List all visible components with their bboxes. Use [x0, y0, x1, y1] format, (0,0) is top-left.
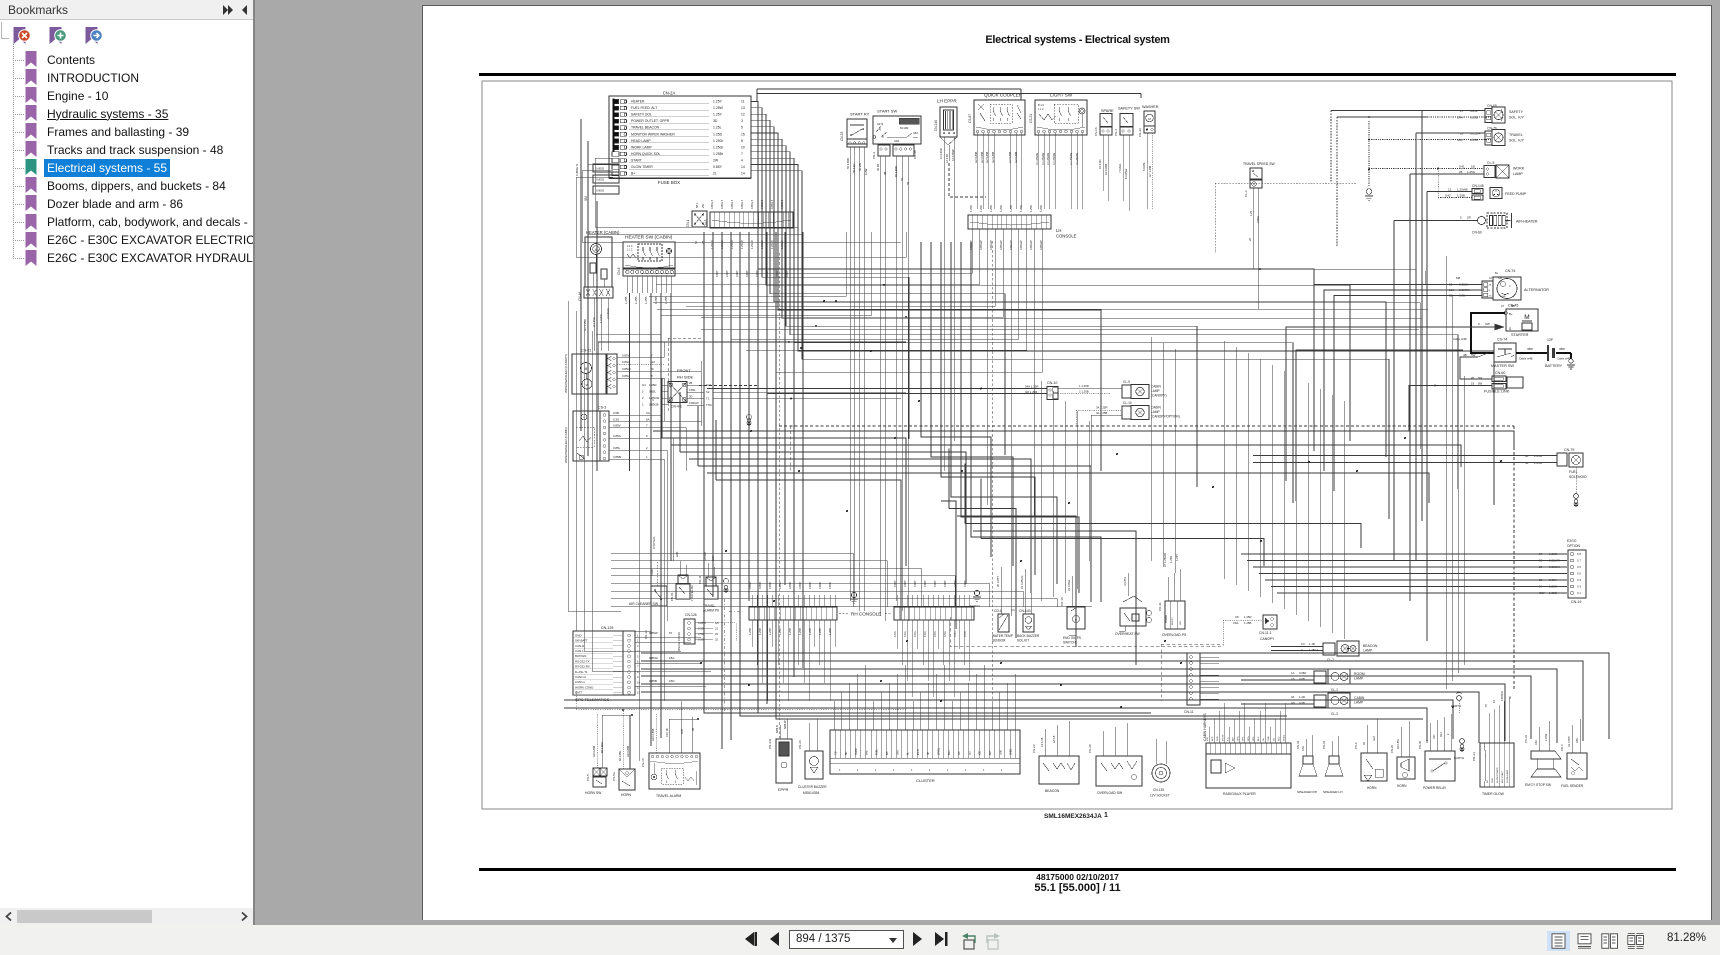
svg-text:S: S: [1509, 327, 1512, 331]
svg-text:1.2R: 1.2R: [1299, 695, 1305, 699]
svg-text:10: 10: [741, 145, 745, 149]
svg-text:0.85Y: 0.85Y: [755, 270, 759, 277]
svg-text:CN-4-1: CN-4-1: [671, 405, 682, 409]
svg-text:45: 45: [1471, 376, 1475, 380]
svg-text:0.85Gr 5: 0.85Gr 5: [575, 164, 579, 176]
svg-text:1.25R: 1.25R: [1169, 556, 1173, 563]
svg-text:1: 1: [839, 768, 841, 772]
svg-text:1.25Gr: 1.25Gr: [713, 139, 724, 143]
svg-text:OVER: OVER: [856, 748, 858, 755]
svg-text:ANT: ANT: [1232, 736, 1235, 741]
svg-text:OVERLOAD PS: OVERLOAD PS: [1162, 633, 1187, 637]
svg-text:START RY: START RY: [850, 112, 870, 117]
svg-text:13: 13: [741, 106, 745, 110]
svg-text:G42: G42: [1445, 194, 1451, 198]
svg-text:C4: C4: [1011, 608, 1015, 612]
svg-text:0.5G: 0.5G: [893, 631, 897, 637]
svg-text:HORN.QUICK SOL: HORN.QUICK SOL: [631, 152, 661, 156]
svg-text:B7: B7: [1485, 703, 1488, 707]
svg-text:1.25R: 1.25R: [1039, 205, 1043, 212]
svg-text:0.5G: 0.5G: [953, 631, 957, 637]
svg-text:CN-81: CN-81: [670, 592, 674, 601]
svg-text:RS232 CONN: RS232 CONN: [677, 632, 681, 651]
svg-text:LH: LH: [1056, 228, 1061, 233]
svg-text:0.5G: 0.5G: [933, 631, 937, 637]
svg-text:3 0.5GW: 3 0.5GW: [606, 308, 610, 319]
svg-text:G2 0.85B: G2 0.85B: [980, 151, 984, 163]
svg-text:CABIN: CABIN: [1354, 696, 1365, 700]
svg-text:1.25R: 1.25R: [969, 205, 973, 212]
svg-text:SAFETY: SAFETY: [1509, 110, 1524, 114]
svg-text:CS-5: CS-5: [586, 774, 590, 781]
svg-text:FUEL: FUEL: [877, 748, 879, 755]
svg-text:5W: 5W: [1478, 382, 1483, 386]
svg-text:1.25L 8: 1.25L 8: [760, 240, 764, 249]
svg-text:SP2-: SP2-: [1253, 736, 1255, 741]
svg-text:G8: G8: [1291, 701, 1295, 705]
svg-text:ILL+: ILL+: [1227, 736, 1229, 741]
svg-text:G8 0.85B: G8 0.85B: [626, 745, 630, 757]
svg-text:1 0.5W: 1 0.5W: [599, 314, 603, 323]
svg-text:G10 0.85B: G10 0.85B: [651, 728, 655, 741]
svg-text:0.85L: 0.85L: [613, 446, 621, 450]
svg-text:B+: B+: [1495, 271, 1499, 275]
svg-text:CN-45: CN-45: [1508, 304, 1518, 308]
svg-text:TRAVEL ALARM: TRAVEL ALARM: [656, 794, 681, 798]
svg-text:GND: GND: [575, 633, 581, 637]
svg-text:1.25W: 1.25W: [1545, 733, 1548, 741]
svg-text:5: 5: [637, 654, 639, 658]
svg-text:M8: M8: [1456, 276, 1460, 280]
svg-text:BATTERY: BATTERY: [1545, 364, 1563, 368]
svg-text:0.8G0: 0.8G0: [622, 360, 630, 364]
svg-text:1.25L 8: 1.25L 8: [730, 240, 734, 249]
svg-text:K1 0.85LG: K1 0.85LG: [1020, 576, 1024, 589]
svg-text:5R: 5R: [694, 241, 698, 244]
svg-text:POWER OUTLET. OPPR: POWER OUTLET. OPPR: [631, 119, 670, 123]
svg-text:1.25B: 1.25B: [1244, 621, 1251, 625]
svg-text:0.85Y: 0.85Y: [735, 270, 739, 277]
svg-text:0.85G 5: 0.85G 5: [770, 199, 774, 209]
svg-text:3BR: 3BR: [1559, 347, 1566, 351]
svg-text:1.25B: 1.25B: [818, 628, 822, 635]
svg-text:1.25R: 1.25R: [1244, 615, 1251, 619]
svg-text:SW BATT: SW BATT: [575, 639, 588, 643]
svg-text:2: 2: [1447, 733, 1450, 735]
svg-text:49 0.85L: 49 0.85L: [1396, 738, 1400, 749]
svg-text:B+: B+: [631, 172, 635, 176]
svg-text:C6: C6: [1291, 677, 1295, 681]
svg-text:0 3: 0 3: [1577, 585, 1581, 589]
svg-text:START SW: START SW: [877, 109, 897, 114]
svg-text:GND: GND: [1000, 750, 1002, 755]
svg-text:5W: 5W: [1478, 376, 1483, 380]
svg-text:3 1.25GW: 3 1.25GW: [1052, 152, 1056, 165]
svg-text:Cable w4B: Cable w4B: [1557, 357, 1571, 361]
svg-text:1R 0.85B: 1R 0.85B: [1104, 164, 1108, 175]
svg-text:C0: C0: [646, 411, 650, 415]
svg-text:M: M: [651, 367, 654, 371]
svg-text:C3 1.1B: C3 1.1B: [1040, 737, 1044, 747]
svg-text:CABIN: CABIN: [1151, 385, 1161, 389]
svg-text:GND: GND: [1217, 736, 1219, 741]
svg-text:GLOW TIMER: GLOW TIMER: [631, 165, 653, 169]
svg-text:E2GO: E2GO: [1567, 539, 1577, 543]
svg-text:15D: 15D: [669, 679, 675, 683]
svg-text:0.6B: 0.6B: [1299, 677, 1305, 681]
svg-text:AUX: AUX: [1257, 736, 1260, 741]
svg-text:SOL. K/Y: SOL. K/Y: [1509, 139, 1525, 143]
svg-text:SPARE: SPARE: [1101, 109, 1114, 113]
svg-text:CN-11-1: CN-11-1: [1259, 631, 1272, 635]
svg-text:58 0.85G: 58 0.85G: [600, 742, 604, 753]
svg-text:GPS TELEMATICS: GPS TELEMATICS: [575, 697, 610, 702]
svg-text:CAN1-H: CAN1-H: [575, 675, 586, 679]
svg-text:G7 1.25B: G7 1.25B: [1148, 165, 1152, 177]
svg-text:WORK: WORK: [1513, 167, 1525, 171]
svg-text:LAMP: LAMP: [1363, 649, 1373, 653]
svg-text:80: 80: [1525, 454, 1529, 458]
svg-text:G8 0.85B: G8 0.85B: [592, 745, 596, 757]
svg-text:30 2B: 30 2B: [876, 164, 880, 171]
svg-text:1.25R: 1.25R: [979, 205, 983, 212]
svg-text:1.25R: 1.25R: [1019, 205, 1023, 212]
svg-text:SWITCH: SWITCH: [1063, 641, 1076, 645]
svg-text:1B: 1B: [1493, 700, 1496, 703]
svg-text:NB8 B: NB8 B: [775, 725, 779, 733]
svg-text:CS-33: CS-33: [1524, 735, 1528, 743]
svg-text:2W: 2W: [713, 158, 719, 162]
svg-text:1.25B: 1.25B: [1534, 461, 1542, 465]
svg-text:DO: DO: [887, 751, 889, 755]
svg-text:SP: SP: [928, 751, 930, 755]
svg-text:33: 33: [715, 632, 718, 636]
svg-text:5A 2W: 5A 2W: [858, 163, 862, 171]
svg-text:NB6 W: NB6 W: [783, 720, 787, 729]
svg-text:1B: 1B: [1471, 165, 1475, 169]
svg-text:CS-67: CS-67: [968, 114, 972, 123]
svg-text:1.25L 8: 1.25L 8: [740, 240, 744, 249]
svg-text:CO: CO: [959, 751, 961, 755]
svg-text:CAN-H: CAN-H: [575, 644, 584, 648]
svg-text:0.85L: 0.85L: [622, 374, 630, 378]
svg-text:CD-13: CD-13: [644, 630, 648, 639]
svg-text:1: 1: [929, 768, 931, 772]
svg-text:0.5G: 0.5G: [963, 631, 967, 637]
svg-text:CS-5A: CS-5A: [612, 772, 616, 781]
svg-text:CABIN: CABIN: [1151, 406, 1161, 410]
svg-text:CN-126: CN-126: [685, 613, 697, 617]
svg-text:CS-74: CS-74: [1497, 338, 1507, 342]
svg-text:G65: G65: [1576, 738, 1579, 743]
svg-text:1: 1: [646, 455, 648, 459]
svg-text:0.85G: 0.85G: [1256, 216, 1260, 223]
svg-text:G22: G22: [1372, 736, 1376, 741]
svg-text:1.25L 8: 1.25L 8: [770, 240, 774, 249]
svg-text:3B: 3B: [883, 172, 887, 175]
svg-text:1.25G1: 1.25G1: [1309, 648, 1319, 652]
svg-text:0.85W: 0.85W: [649, 631, 658, 635]
svg-text:SOL.KIT: SOL.KIT: [1017, 639, 1029, 643]
svg-text:C8: C8: [1235, 615, 1239, 619]
svg-text:SP1+: SP1+: [1238, 735, 1240, 741]
svg-text:CN-79: CN-79: [1564, 448, 1574, 452]
svg-text:CAN-L: CAN-L: [575, 649, 584, 653]
svg-text:0.85L: 0.85L: [1470, 109, 1478, 113]
svg-text:1.25R: 1.25R: [1029, 205, 1033, 212]
svg-text:W: W: [586, 383, 589, 387]
svg-text:G2 0.85B: G2 0.85B: [1008, 151, 1012, 163]
svg-text:32: 32: [1509, 696, 1512, 699]
svg-text:SAFETY SOL: SAFETY SOL: [631, 113, 652, 117]
svg-text:LH EPPR: LH EPPR: [937, 99, 957, 104]
svg-text:4: 4: [741, 158, 743, 162]
svg-text:0.85B: 0.85B: [649, 679, 657, 683]
svg-text:3: 3: [1509, 284, 1511, 288]
svg-text:CN-19: CN-19: [1571, 600, 1581, 604]
svg-text:BACK BUZZER: BACK BUZZER: [1017, 634, 1040, 638]
svg-text:CN-23: CN-23: [1138, 128, 1142, 137]
svg-text:3: 3: [741, 119, 743, 123]
svg-text:0.85B: 0.85B: [788, 582, 792, 589]
svg-text:1.25B: 1.25B: [778, 628, 782, 635]
svg-text:CN-3: CN-3: [704, 219, 708, 227]
svg-text:MASTER SW: MASTER SW: [1491, 364, 1514, 368]
svg-text:3D: 3D: [713, 119, 718, 123]
svg-text:1.25Gr: 1.25Gr: [713, 145, 724, 149]
svg-text:WATER TEMP: WATER TEMP: [992, 634, 1013, 638]
svg-text:EARTH: EARTH: [1454, 756, 1464, 760]
svg-text:0.6B/r: 0.6B/r: [1299, 671, 1307, 675]
svg-text:MS614354: MS614354: [803, 791, 820, 795]
svg-text:3BR: 3BR: [1527, 347, 1534, 351]
svg-text:CN-48: CN-48: [913, 150, 917, 159]
svg-text:C10 1B: C10 1B: [665, 728, 669, 737]
svg-text:G2 0.85B: G2 0.85B: [985, 151, 989, 163]
svg-text:CLUSTER BUZZER: CLUSTER BUZZER: [798, 785, 827, 789]
svg-text:7: 7: [637, 665, 639, 669]
svg-text:2L: 2L: [713, 172, 717, 176]
svg-text:EPPR: EPPR: [778, 788, 789, 792]
svg-text:SOL. K/Y: SOL. K/Y: [1509, 116, 1525, 120]
svg-text:7: 7: [646, 424, 648, 428]
svg-text:0.85L: 0.85L: [689, 388, 696, 392]
svg-text:G2 0.85B: G2 0.85B: [1014, 151, 1018, 163]
svg-text:58: 58: [1525, 461, 1529, 465]
svg-text:EARTH: EARTH: [1451, 704, 1461, 708]
svg-text:1.1B: 1.1B: [1309, 642, 1315, 646]
svg-text:28: 28: [1460, 132, 1464, 136]
svg-text:8: 8: [637, 670, 639, 674]
svg-text:0.85G: 0.85G: [596, 167, 605, 171]
svg-text:LEVEL: LEVEL: [939, 747, 941, 755]
svg-text:0 7: 0 7: [1577, 559, 1581, 563]
svg-text:0.85Br: 0.85Br: [613, 455, 622, 459]
svg-text:0.85V: 0.85V: [622, 354, 630, 358]
svg-text:POWER RELAY: POWER RELAY: [1423, 786, 1447, 790]
svg-text:0.85L: 0.85L: [649, 390, 656, 394]
svg-text:23 0.8G1: 23 0.8G1: [1067, 579, 1071, 591]
svg-text:ENG OIL PS: ENG OIL PS: [1063, 636, 1081, 640]
svg-text:OPTION: OPTION: [1567, 544, 1581, 548]
svg-text:1.25D: 1.25D: [713, 132, 723, 136]
svg-text:2 1.25B: 2 1.25B: [1079, 390, 1089, 394]
svg-text:FUSE BOX: FUSE BOX: [658, 180, 680, 185]
svg-text:0.85GW: 0.85GW: [1019, 240, 1023, 250]
svg-text:1.25GW: 1.25GW: [649, 396, 660, 400]
svg-text:1.25B: 1.25B: [624, 297, 628, 304]
svg-text:0.85G: 0.85G: [596, 178, 605, 182]
svg-text:A: A: [1301, 648, 1303, 652]
svg-text:2: 2: [642, 396, 644, 400]
svg-text:CN-1: CN-1: [686, 219, 690, 227]
svg-text:0.5G: 0.5G: [923, 631, 927, 637]
svg-text:14: 14: [741, 172, 745, 176]
svg-text:A7 1.25GW: A7 1.25GW: [1163, 553, 1167, 567]
svg-text:0.5G: 0.5G: [903, 631, 907, 637]
svg-text:1 1.25R: 1 1.25R: [1079, 384, 1089, 388]
svg-text:7: 7: [651, 354, 653, 358]
svg-text:1: 1: [857, 768, 859, 772]
svg-text:SP1-: SP1-: [1243, 736, 1245, 741]
svg-text:5: 5: [1460, 216, 1462, 220]
svg-text:5W: 5W: [1471, 353, 1476, 357]
svg-text:55 0.85B: 55 0.85B: [846, 158, 850, 169]
svg-text:0.85L/R: 0.85L/R: [1470, 132, 1481, 136]
svg-text:1.25: 1.25: [1249, 210, 1253, 216]
svg-text:18A: 18A: [669, 656, 674, 660]
svg-text:0 4: 0 4: [1577, 578, 1581, 582]
svg-text:0.85BrW: 0.85BrW: [1501, 691, 1504, 701]
svg-text:T/B: T/B: [836, 751, 838, 755]
svg-text:5B 1: 5B 1: [695, 202, 699, 208]
svg-text:1: 1: [642, 403, 644, 407]
svg-text:7: 7: [741, 152, 743, 156]
svg-text:0.85B: 0.85B: [808, 582, 812, 589]
svg-text:1.25WB: 1.25WB: [1457, 188, 1468, 192]
svg-text:1.25R: 1.25R: [649, 383, 656, 387]
svg-text:9: 9: [637, 675, 639, 679]
svg-text:WORK LAMP: WORK LAMP: [631, 145, 652, 149]
svg-text:CS-4: CS-4: [1114, 129, 1118, 136]
svg-text:HD: HD: [846, 751, 848, 755]
svg-text:6 0.85Gr: 6 0.85Gr: [1124, 168, 1128, 179]
svg-text:4B: 4B: [1463, 353, 1467, 357]
svg-text:GND2: GND2: [1011, 748, 1013, 755]
svg-text:G4: G4: [642, 383, 646, 387]
svg-text:1.25B: 1.25B: [634, 297, 638, 304]
svg-text:ALARM PS: ALARM PS: [703, 609, 719, 613]
svg-text:0.85B: 0.85B: [758, 582, 762, 589]
svg-text:K30: K30: [1207, 736, 1209, 741]
svg-text:CS-6: CS-6: [1354, 742, 1358, 749]
svg-text:0.85G: 0.85G: [613, 434, 622, 438]
svg-text:3 1.25GW: 3 1.25GW: [1046, 152, 1050, 165]
svg-text:CN-2: CN-2: [872, 152, 876, 159]
svg-text:0.85G: 0.85G: [596, 189, 605, 193]
svg-text:0 1: 0 1: [1577, 591, 1581, 595]
svg-text:9A 0.85L: 9A 0.85L: [618, 750, 622, 761]
svg-text:HEAD LAMP: HEAD LAMP: [631, 139, 651, 143]
svg-text:0.85B: 0.85B: [768, 582, 772, 589]
svg-text:A7: A7: [1501, 304, 1505, 308]
svg-text:11 0.65R: 11 0.65R: [939, 148, 943, 159]
svg-text:CL-7: CL-7: [1327, 658, 1334, 662]
svg-text:SOLENOID: SOLENOID: [1569, 475, 1587, 479]
svg-text:CN-60: CN-60: [1495, 371, 1505, 375]
svg-text:49: 49: [1362, 742, 1366, 745]
svg-text:SM: SM: [584, 196, 588, 201]
svg-text:CN-26: CN-26: [798, 740, 802, 749]
svg-text:WORK COND: WORK COND: [575, 685, 593, 689]
svg-text:CN-10: CN-10: [1047, 381, 1057, 385]
svg-text:2B: 2B: [701, 241, 705, 244]
svg-text:10 0.8G: 10 0.8G: [1098, 159, 1102, 169]
svg-text:1: 1: [893, 768, 895, 772]
svg-text:FUEL: FUEL: [1569, 470, 1578, 474]
svg-text:CH1: CH1: [706, 383, 712, 387]
svg-text:WIPER/WASHER (CANOPY): WIPER/WASHER (CANOPY): [564, 354, 568, 393]
svg-text:50B: 50B: [680, 729, 684, 734]
svg-text:1.25L 8: 1.25L 8: [750, 240, 754, 249]
svg-text:0.85GW: 0.85GW: [989, 240, 993, 250]
svg-text:HEATER: HEATER: [631, 100, 645, 104]
svg-text:START: START: [631, 158, 642, 162]
svg-text:2W: 2W: [701, 204, 705, 208]
svg-text:1: 1: [983, 768, 985, 772]
svg-text:1: 1: [875, 768, 877, 772]
svg-text:RS-232-RX: RS-232-RX: [575, 665, 590, 669]
svg-text:1: 1: [965, 768, 967, 772]
svg-text:4G1: 4G1: [1440, 732, 1443, 737]
svg-text:3 1.25GW: 3 1.25GW: [1035, 152, 1039, 165]
svg-text:GN3: GN3: [894, 140, 900, 143]
svg-text:1.25B: 1.25B: [664, 297, 668, 304]
svg-text:5 0.85L: 5 0.85L: [1142, 162, 1146, 171]
svg-text:PRE: PRE: [866, 750, 868, 755]
svg-text:50 0.85B: 50 0.85B: [894, 166, 898, 177]
svg-text:(CANOPY/OPTION): (CANOPY/OPTION): [1151, 415, 1180, 419]
svg-text:B 1 0: B 1 0: [1038, 104, 1044, 107]
svg-text:3A 1.25R: 3A 1.25R: [1096, 406, 1108, 410]
svg-text:3A 1.25B: 3A 1.25B: [1096, 411, 1107, 415]
svg-text:Cable w4B: Cable w4B: [1519, 357, 1533, 361]
svg-text:GB1: GB1: [913, 132, 918, 135]
svg-text:M: M: [1148, 117, 1151, 121]
svg-text:CN-24: CN-24: [1472, 752, 1476, 761]
svg-text:NC: NC: [1273, 737, 1275, 741]
svg-text:CONSOLE: CONSOLE: [1056, 234, 1077, 239]
svg-text:HEATER SW (CABIN): HEATER SW (CABIN): [625, 235, 673, 241]
svg-text:12: 12: [637, 691, 640, 695]
svg-text:0.85Gr: 0.85Gr: [622, 367, 631, 371]
svg-text:45 0.5G: 45 0.5G: [852, 163, 856, 173]
svg-text:LAMP: LAMP: [1151, 389, 1160, 393]
svg-text:12F: 12F: [1547, 338, 1554, 342]
svg-text:TRAVEL BEACON: TRAVEL BEACON: [631, 126, 660, 130]
svg-text:12: 12: [741, 113, 745, 117]
svg-text:C31: C31: [1433, 734, 1436, 739]
svg-text:1: 1: [1001, 768, 1003, 772]
svg-text:BAT: BAT: [989, 750, 992, 755]
svg-text:3D: 3D: [689, 395, 692, 399]
svg-text:G: G: [1489, 290, 1491, 292]
svg-text:HORN SW: HORN SW: [585, 791, 602, 795]
svg-text:12 0.65: 12 0.65: [945, 154, 949, 163]
svg-text:WASHER: WASHER: [1142, 105, 1159, 109]
svg-text:HORN: HORN: [1397, 784, 1407, 788]
svg-text:1.25B: 1.25B: [1457, 194, 1465, 198]
